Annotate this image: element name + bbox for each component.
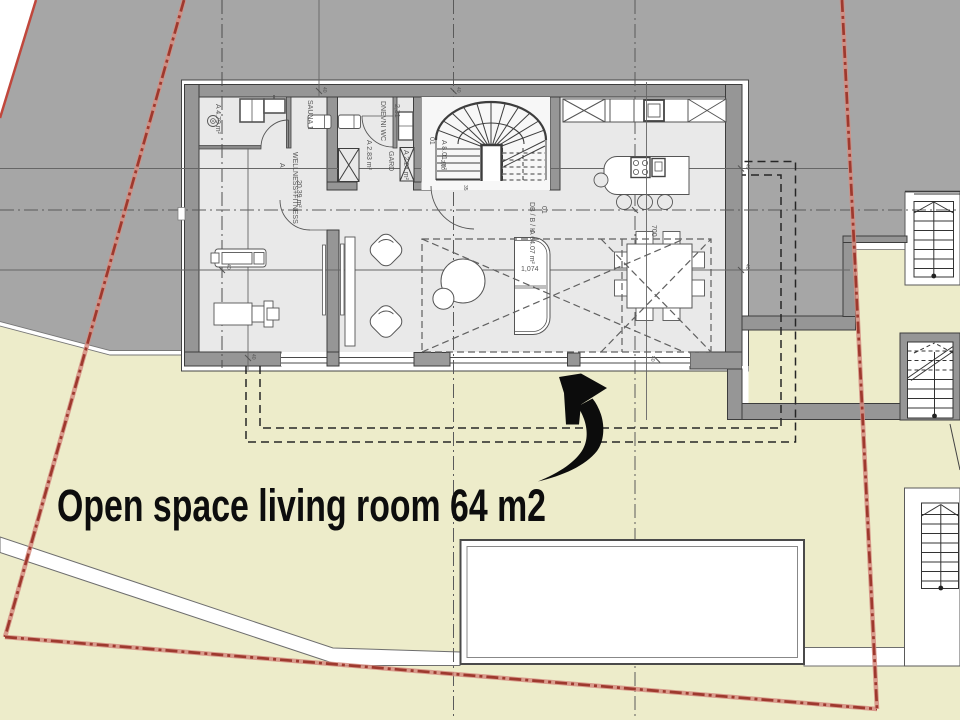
svg-text:1,074: 1,074	[521, 266, 539, 273]
svg-text:700: 700	[650, 225, 657, 237]
svg-text:20.39 m²: 20.39 m²	[295, 180, 302, 208]
svg-text:40: 40	[649, 356, 655, 362]
svg-text:Open space living room 64 m2: Open space living room 64 m2	[57, 480, 546, 531]
svg-text:A 4.79 m²: A 4.79 m²	[214, 104, 221, 135]
svg-text:40: 40	[225, 264, 231, 270]
svg-text:SAUNA 1: SAUNA 1	[306, 100, 313, 130]
svg-text:A: A	[278, 163, 285, 168]
svg-text:GARD: GARD	[387, 151, 394, 171]
svg-text:A 2.83 m²: A 2.83 m²	[365, 140, 372, 171]
svg-text:2,10: 2,10	[439, 160, 445, 170]
svg-text:40: 40	[321, 87, 327, 93]
svg-text:40: 40	[744, 264, 750, 270]
svg-text:01: 01	[540, 206, 547, 214]
svg-text:DNEVNI WC: DNEVNI WC	[379, 101, 386, 141]
svg-text:A 64.07 m²: A 64.07 m²	[528, 230, 535, 265]
svg-text:01: 01	[428, 137, 435, 145]
svg-text:40: 40	[744, 164, 750, 170]
svg-text:A 2.24 m²: A 2.24 m²	[402, 150, 409, 181]
svg-text:35: 35	[462, 185, 468, 191]
svg-text:40: 40	[455, 87, 461, 93]
svg-text:2,31: 2,31	[393, 104, 400, 118]
svg-text:40: 40	[250, 354, 256, 360]
svg-text:DB / B / K: DB / B / K	[528, 202, 535, 233]
